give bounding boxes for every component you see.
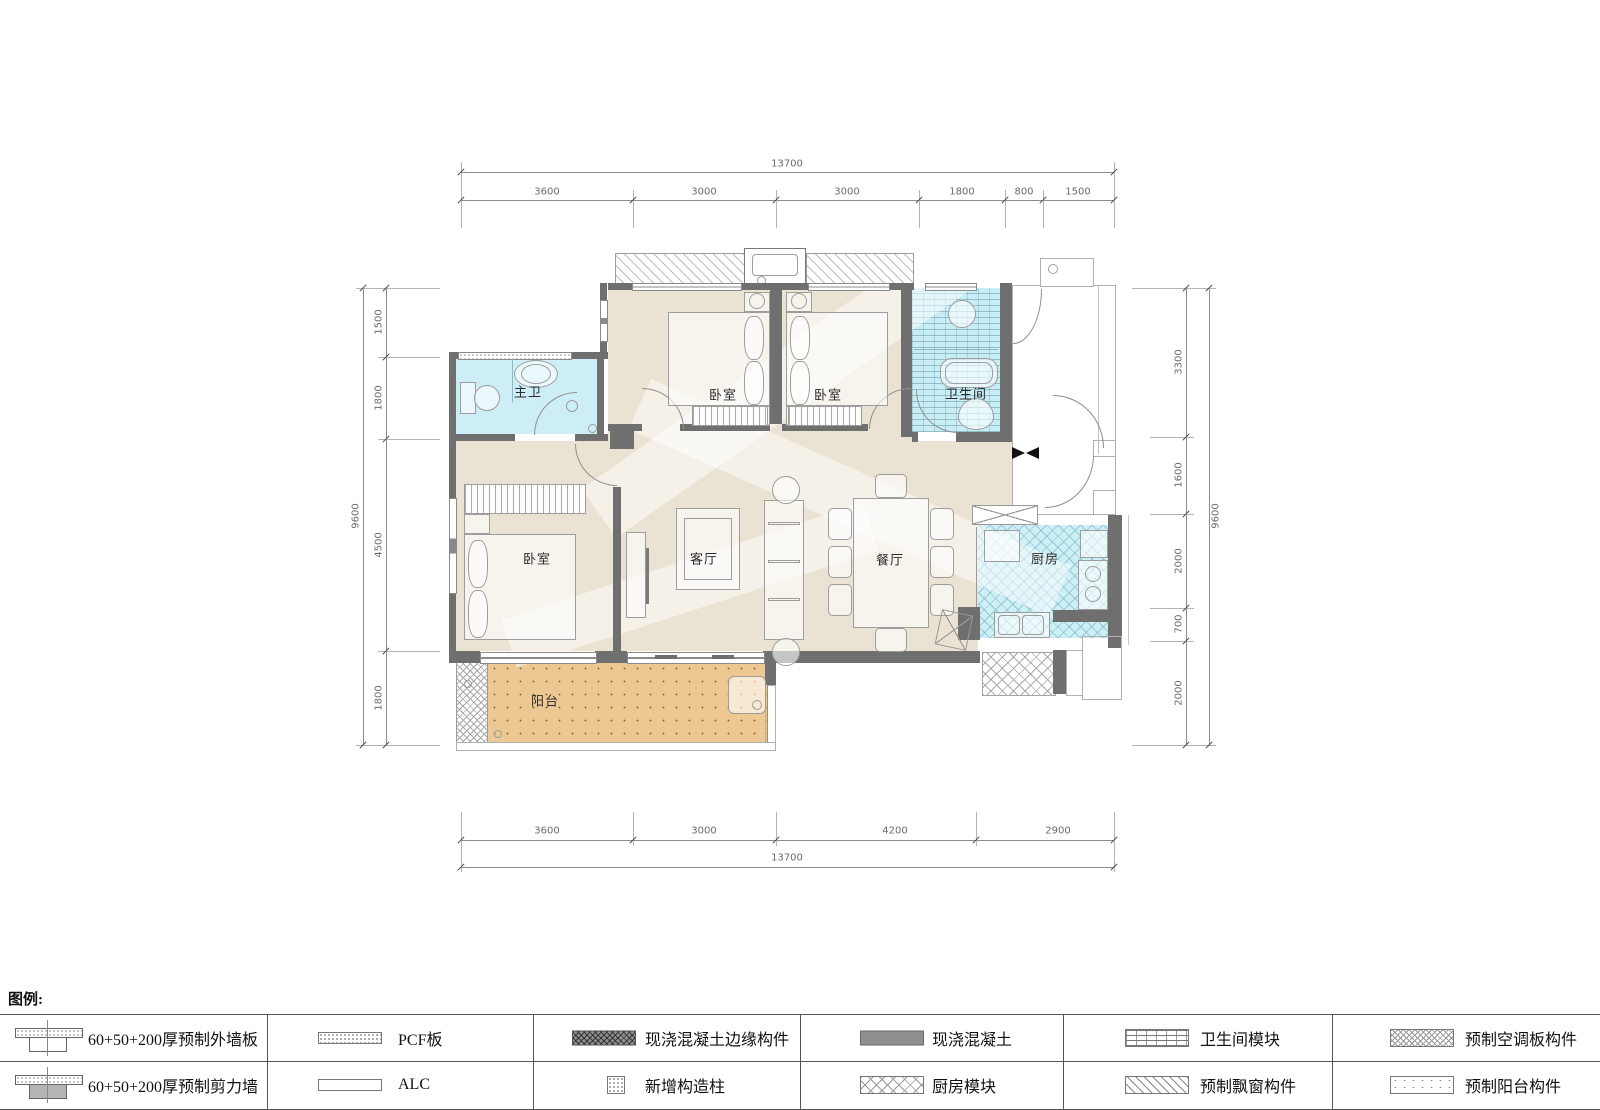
chair: [930, 508, 954, 540]
pillow: [468, 540, 488, 588]
burner: [1085, 566, 1101, 582]
wall: [449, 434, 515, 441]
sliding-door-track: [712, 655, 734, 659]
sink-basin: [998, 615, 1020, 635]
wall: [912, 432, 918, 442]
neighbor-lines: [1082, 636, 1122, 700]
sliding-door: [627, 652, 765, 664]
precast-bay-window-icon: [1125, 1076, 1189, 1094]
pcf-board-icon: [318, 1032, 382, 1044]
legend-table: 60+50+200厚预制外墙板 60+50+200厚预制剪力墙 PCF板 ALC…: [0, 1014, 1600, 1110]
toilet: [958, 398, 994, 430]
section-marker: [1012, 447, 1025, 459]
nightstand-lamp: [791, 293, 807, 309]
platform-drain: [1048, 264, 1058, 274]
window: [925, 283, 977, 291]
room-label-dining: 餐厅: [876, 550, 904, 569]
dim-total-top: 13700: [771, 159, 803, 170]
chair: [828, 546, 852, 578]
shower-drain: [566, 400, 578, 412]
precast-shear-wall-icon: [15, 1067, 81, 1103]
legend-item-label: 现浇混凝土边缘构件: [645, 1026, 789, 1050]
floor-balcony: [487, 661, 768, 744]
ac-board-strip: [456, 661, 488, 751]
wall-bedroom-divider: [770, 290, 782, 424]
side-table: [772, 476, 800, 504]
side-table: [772, 638, 800, 666]
dim: 700: [1174, 614, 1185, 633]
room-label-balcony: 阳台: [531, 691, 559, 710]
sofa-cushion: [768, 598, 800, 601]
precast-exterior-wall-panel-icon: [15, 1020, 81, 1056]
dim: 3600: [534, 826, 559, 837]
wall-bathroom-right: [1000, 283, 1012, 442]
chair: [875, 474, 907, 498]
floor-drain: [588, 424, 597, 433]
wall: [956, 432, 1000, 442]
legend-item-label: 预制空调板构件: [1465, 1026, 1577, 1050]
room-label-kitchen: 厨房: [1031, 549, 1059, 568]
wall-south: [449, 651, 480, 663]
bay-window-band: [615, 253, 747, 287]
sliding-door-track: [655, 655, 677, 659]
window: [480, 652, 597, 664]
alc-board-icon: [318, 1079, 382, 1091]
legend-item-label: ALC: [398, 1076, 430, 1094]
roof-platform: [1040, 258, 1094, 287]
legend-item-label: 新增构造柱: [645, 1073, 725, 1097]
burner: [1085, 586, 1101, 602]
partition: [512, 359, 513, 403]
window: [632, 283, 742, 291]
dim: 2900: [1045, 826, 1070, 837]
nightstand: [464, 514, 490, 534]
balcony-rail: [456, 742, 776, 751]
neighbor-line: [1128, 515, 1129, 645]
wall-balcony-right: [765, 663, 776, 685]
legend-item-label: 预制飘窗构件: [1200, 1073, 1296, 1097]
tv: [646, 548, 649, 604]
sofa-cushion: [768, 560, 800, 563]
dim: 3600: [534, 187, 559, 198]
fridge: [984, 530, 1020, 562]
kitchen-module-icon: [860, 1076, 924, 1094]
shaft-box: [972, 505, 1038, 525]
dim: 2000: [1174, 548, 1185, 573]
ac-unit: [752, 254, 798, 276]
chair: [828, 584, 852, 616]
dim: 3000: [691, 187, 716, 198]
dim-total-right: 9600: [1211, 503, 1222, 528]
bathroom-module-icon: [1125, 1029, 1189, 1047]
cast-concrete-edge-icon: [572, 1031, 636, 1046]
tv-cabinet: [626, 532, 646, 618]
dim: 1800: [374, 685, 385, 710]
pillow: [744, 361, 764, 405]
dim: 3000: [691, 826, 716, 837]
wall-kitchen-bottom: [1053, 610, 1108, 622]
section-marker: [1026, 447, 1039, 459]
wall-living-bedroom: [613, 487, 621, 651]
toilet: [474, 385, 500, 411]
dim: 800: [1014, 187, 1033, 198]
precast-ac-board-icon: [1390, 1029, 1454, 1047]
floor-plan-sheet: 主卫 卧室 卧室 卫生间 卧室 客厅 餐厅 厨房 阳台 13700 3600 3…: [0, 0, 1600, 1110]
room-label-bathroom: 卫生间: [945, 384, 987, 403]
drain: [464, 680, 472, 688]
pillow: [744, 316, 764, 360]
dim: 3300: [1174, 349, 1185, 374]
legend-item-label: 预制阳台构件: [1465, 1073, 1561, 1097]
legend-item-label: 60+50+200厚预制剪力墙: [88, 1073, 258, 1097]
window: [600, 300, 608, 342]
pillow: [468, 590, 488, 638]
pcf-panel-band: [458, 352, 572, 360]
drain: [494, 730, 502, 738]
dim: 3000: [834, 187, 859, 198]
kitchen-partition: [976, 527, 977, 607]
legend-item-label: 厨房模块: [932, 1073, 996, 1097]
nightstand-lamp: [749, 293, 765, 309]
kitchen-module: [982, 652, 1056, 696]
legend-item-label: 卫生间模块: [1200, 1026, 1280, 1050]
washbasin: [948, 300, 976, 328]
dim: 1500: [1065, 187, 1090, 198]
wardrobe: [692, 406, 768, 426]
duct-box: [1066, 650, 1083, 696]
dim: 1600: [1174, 462, 1185, 487]
wall: [597, 352, 604, 441]
pillow: [790, 316, 810, 360]
chair: [828, 508, 852, 540]
wall: [1053, 650, 1066, 694]
chair: [875, 628, 907, 652]
wardrobe: [788, 406, 862, 426]
dim: 2000: [1174, 680, 1185, 705]
precast-balcony-icon: [1390, 1076, 1454, 1094]
legend-item-label: 现浇混凝土: [932, 1026, 1012, 1050]
sink-basin: [1022, 615, 1044, 635]
room-label-bedroom: 卧室: [814, 385, 842, 404]
sofa: [764, 500, 804, 640]
legend-item-label: 60+50+200厚预制外墙板: [88, 1026, 258, 1050]
wall-south: [595, 651, 627, 663]
lobby-stub: [1093, 490, 1116, 515]
room-label-master-bath: 主卫: [514, 382, 542, 401]
window: [808, 283, 890, 291]
wall-kitchen-right: [1108, 515, 1122, 648]
bay-window-band: [806, 253, 914, 287]
room-label-bedroom: 卧室: [709, 385, 737, 404]
upper-cabinet: [1080, 530, 1108, 558]
pillow: [790, 361, 810, 405]
new-structural-column-icon: [607, 1076, 625, 1094]
balcony-right-rail: [765, 685, 776, 743]
sofa-cushion: [768, 522, 800, 525]
wall: [608, 424, 642, 431]
legend-title: 图例:: [8, 988, 43, 1009]
window: [449, 498, 457, 594]
wardrobe: [464, 484, 586, 514]
dim: 1500: [374, 309, 385, 334]
chair: [930, 546, 954, 578]
washer-knob: [752, 700, 762, 710]
room-label-bedroom: 卧室: [523, 549, 551, 568]
bath-counter-line: [914, 349, 998, 350]
dim-total-bottom: 13700: [771, 853, 803, 864]
room-label-living: 客厅: [690, 549, 718, 568]
dim: 1800: [374, 385, 385, 410]
dim: 4200: [882, 826, 907, 837]
bathtub-inner: [945, 362, 993, 384]
legend-item-label: PCF板: [398, 1026, 442, 1050]
dim: 4500: [374, 532, 385, 557]
dim: 1800: [949, 187, 974, 198]
cast-concrete-icon: [860, 1031, 924, 1046]
dim-total-left: 9600: [351, 503, 362, 528]
